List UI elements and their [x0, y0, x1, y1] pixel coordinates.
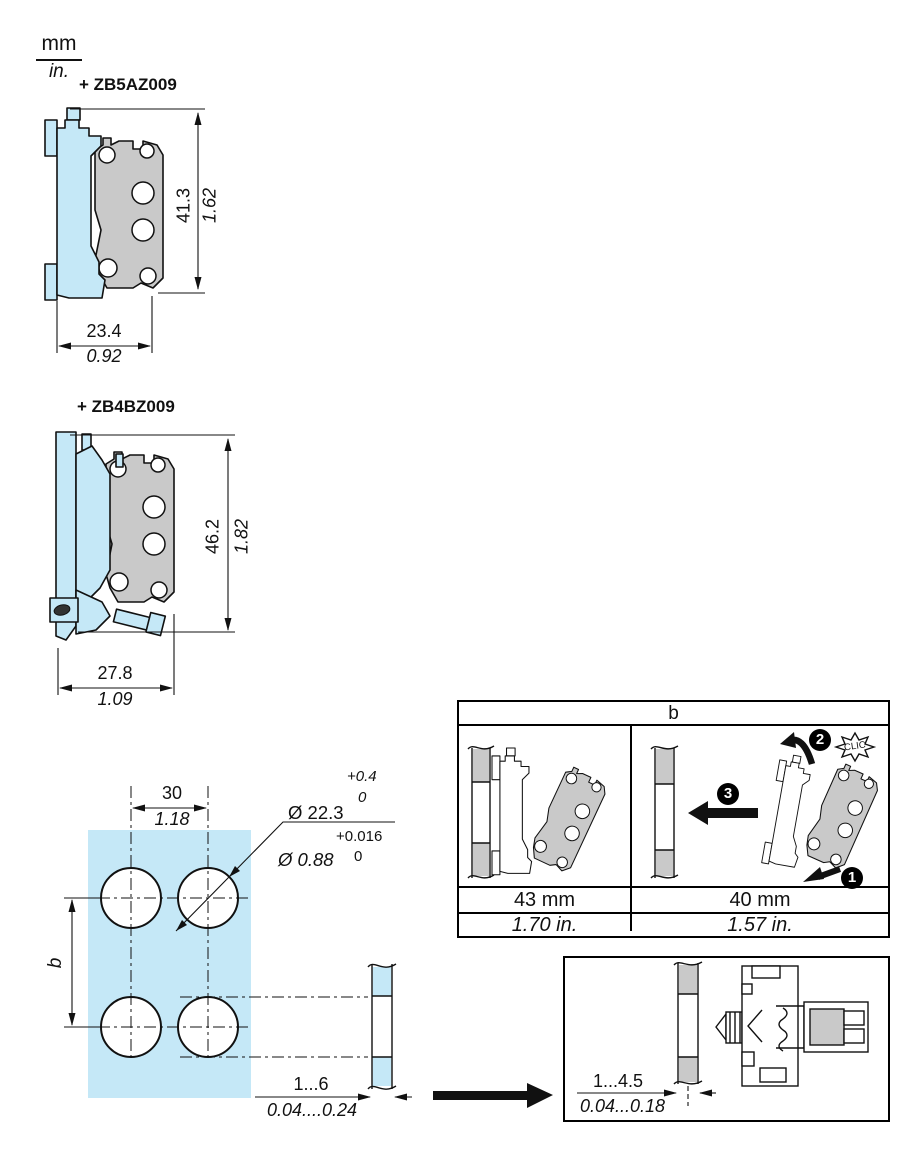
- table-left-in: 1.70 in.: [459, 914, 630, 937]
- zb5-width-in: 0.92: [64, 347, 144, 366]
- zb4-height-mm: 46.2: [204, 496, 223, 576]
- zb4-height-in: 1.82: [233, 496, 252, 576]
- step-badge-1: 1: [841, 867, 863, 889]
- dimensions-page: mm in. + ZB5AZ009 41.3 1.62 23.4 0.92 + …: [0, 0, 924, 1166]
- zb4-title: + ZB4BZ009: [77, 398, 175, 416]
- mount-thickness-in: 0.04...0.18: [570, 1097, 675, 1116]
- cutout-thickness-mm: 1...6: [271, 1075, 351, 1094]
- panel-surface: [88, 830, 251, 1098]
- table-row-divider-1: [459, 886, 888, 888]
- zb5-title: + ZB5AZ009: [79, 76, 177, 94]
- zb4-width-mm: 27.8: [75, 664, 155, 683]
- cutout-dia-mm-tol-upper: +0.4: [347, 769, 377, 785]
- zb5-height-mm: 41.3: [175, 165, 194, 245]
- cutout-thickness-in: 0.04....0.24: [252, 1101, 372, 1120]
- panel-edge-view: [368, 964, 396, 1089]
- cutout-pitch-in: 1.18: [132, 810, 212, 829]
- cutout-dia-mm: Ø 22.3: [288, 803, 344, 822]
- step-badge-2: 2: [809, 729, 831, 751]
- flow-arrow: [433, 1083, 553, 1108]
- unit-in-label: in.: [38, 62, 80, 82]
- table-header-b: b: [459, 703, 888, 725]
- table-right-in: 1.57 in.: [632, 914, 888, 937]
- cutout-dia-in-tol-lower: 0: [354, 849, 362, 865]
- zb5-width-mm: 23.4: [64, 322, 144, 341]
- table-right-mm: 40 mm: [632, 889, 888, 912]
- step-badge-3: 3: [717, 783, 739, 805]
- zb5-height-in: 1.62: [201, 165, 220, 245]
- cutout-dia-in: Ø 0.88: [278, 850, 334, 869]
- cutout-dia-mm-tol-lower: 0: [358, 790, 366, 806]
- cutout-row-pitch-label: b: [46, 933, 66, 993]
- cutout-pitch-mm: 30: [132, 784, 212, 803]
- cutout-dia-in-tol-upper: +0.016: [336, 829, 382, 845]
- unit-mm-label: mm: [38, 33, 80, 55]
- mount-thickness-mm: 1...4.5: [578, 1072, 658, 1091]
- table-left-mm: 43 mm: [459, 889, 630, 912]
- zb4-width-in: 1.09: [75, 690, 155, 709]
